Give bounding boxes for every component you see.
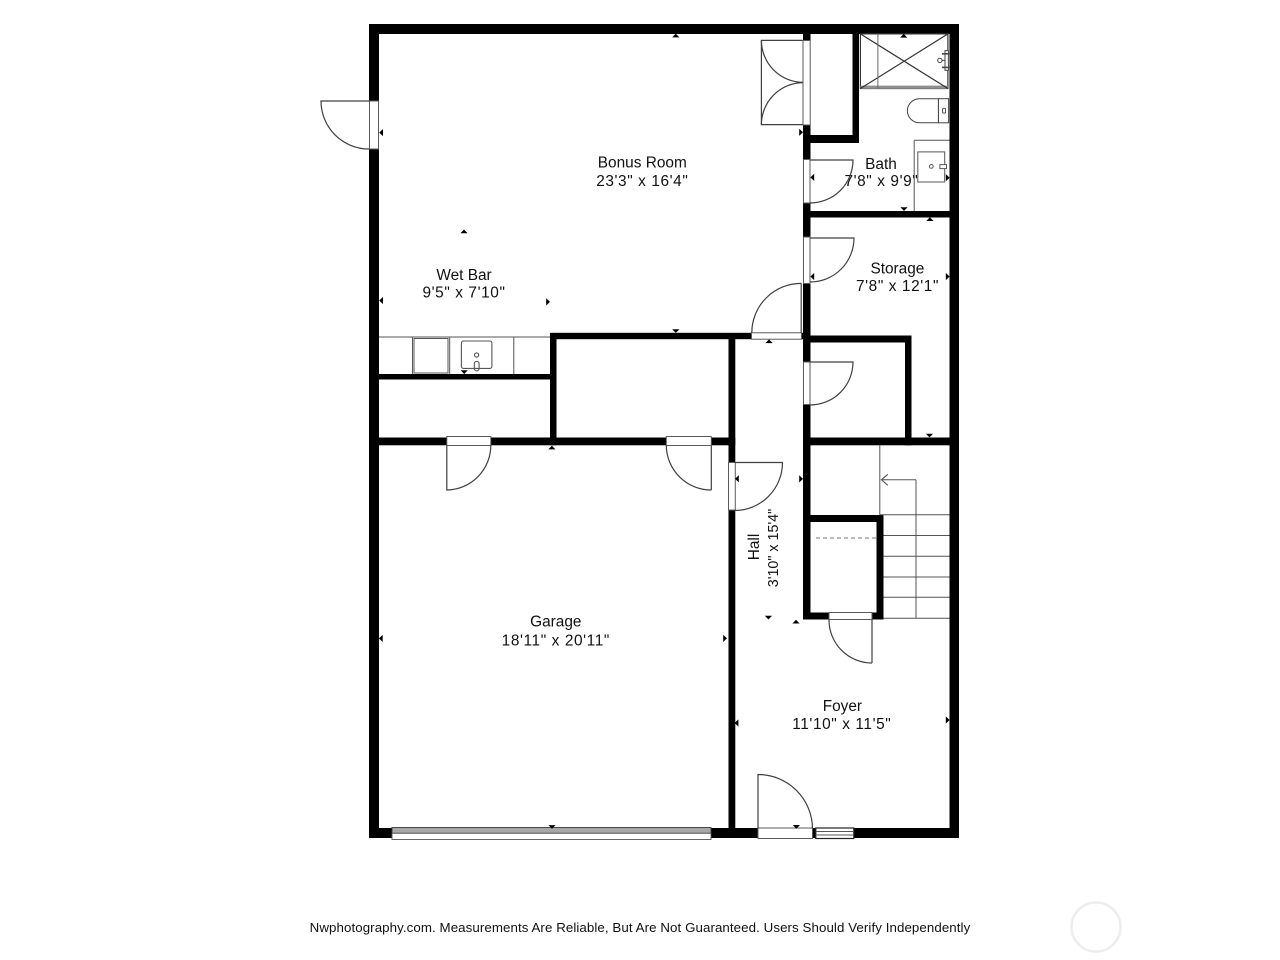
svg-text:7'8" x 9'9": 7'8" x 9'9" xyxy=(844,173,918,190)
svg-text:Garage: Garage xyxy=(530,614,581,631)
svg-text:Nwphotography.com. Measurement: Nwphotography.com. Measurements Are Reli… xyxy=(310,920,971,935)
svg-text:23'3" x 16'4": 23'3" x 16'4" xyxy=(596,173,688,190)
svg-text:Foyer: Foyer xyxy=(823,698,862,715)
svg-text:7'8" x 12'1": 7'8" x 12'1" xyxy=(856,278,939,295)
svg-text:Storage: Storage xyxy=(870,260,924,277)
svg-text:Bath: Bath xyxy=(865,156,897,173)
svg-text:9'5" x 7'10": 9'5" x 7'10" xyxy=(422,285,505,302)
svg-text:Hall: Hall xyxy=(746,534,763,561)
svg-text:Wet Bar: Wet Bar xyxy=(436,267,491,284)
svg-text:11'10" x 11'5": 11'10" x 11'5" xyxy=(792,716,891,733)
svg-text:18'11" x 20'11": 18'11" x 20'11" xyxy=(502,633,610,650)
svg-text:Bonus Room: Bonus Room xyxy=(598,155,687,172)
svg-text:3'10" x 15'4": 3'10" x 15'4" xyxy=(766,509,782,587)
